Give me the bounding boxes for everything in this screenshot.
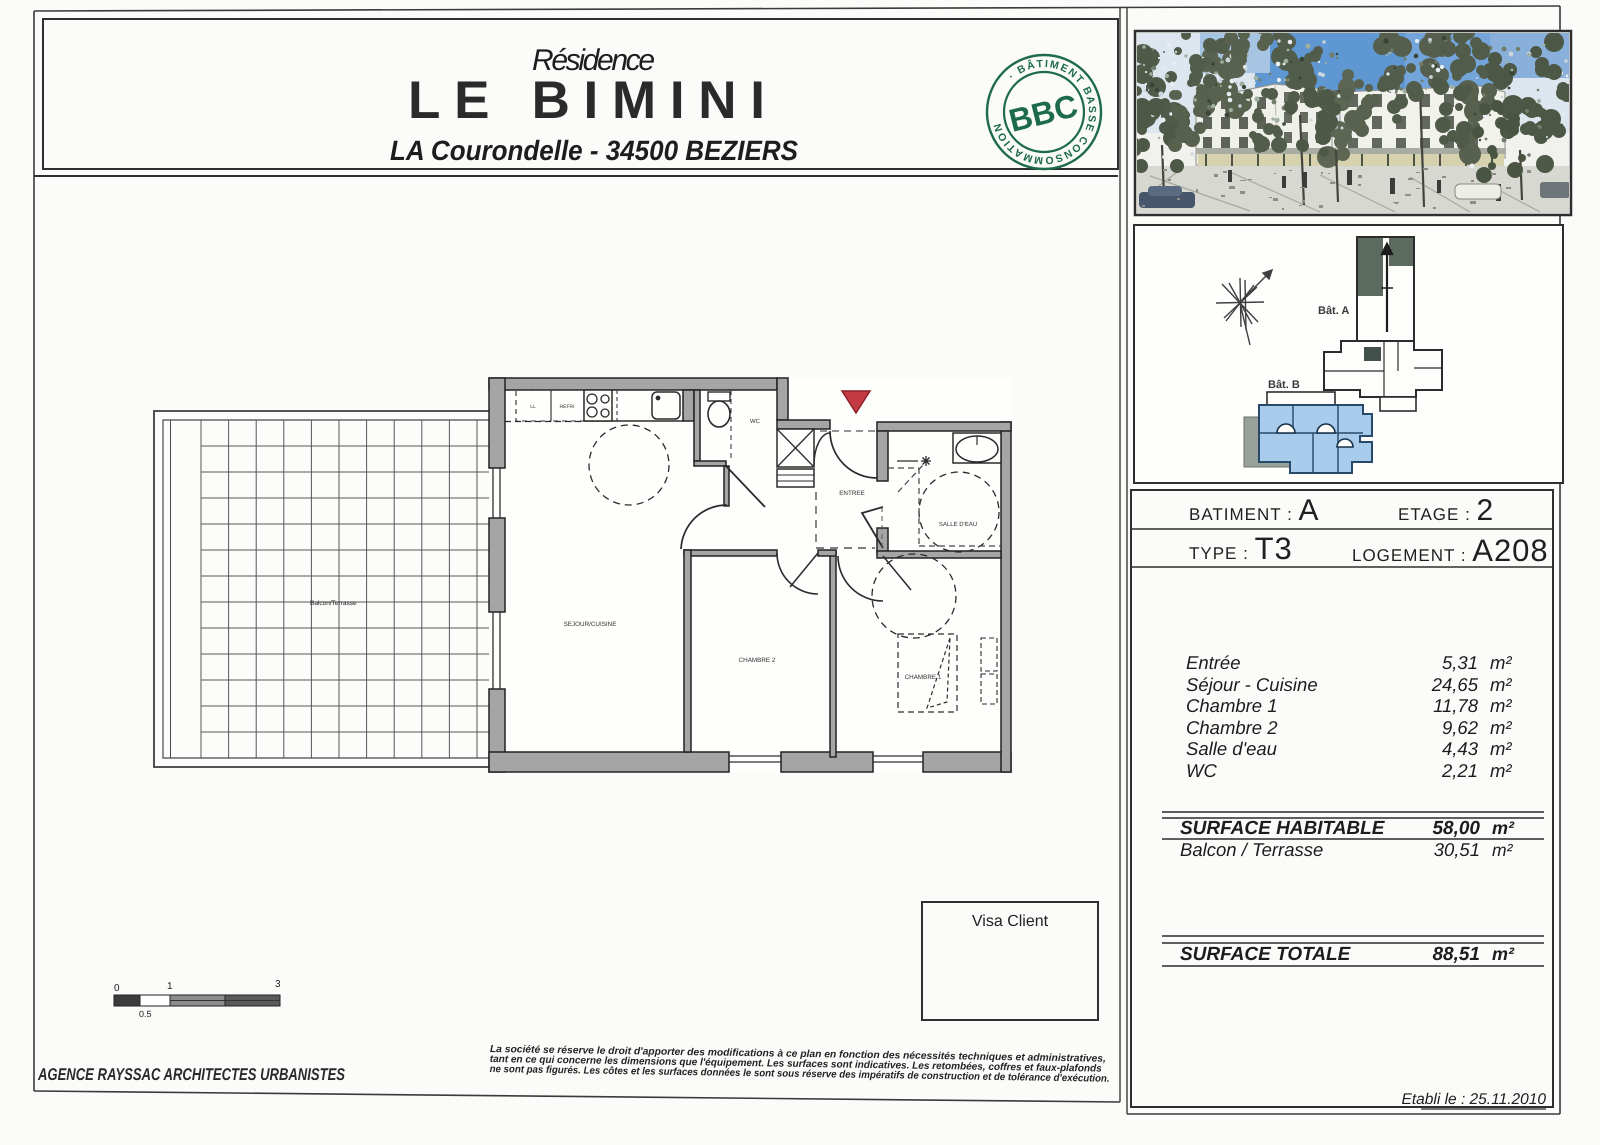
svg-text:4,43: 4,43 [1442, 738, 1479, 759]
svg-text:9,62: 9,62 [1442, 717, 1479, 738]
svg-text:CHAMBRE 2: CHAMBRE 2 [739, 657, 776, 664]
svg-text:m²: m² [1490, 652, 1512, 673]
svg-text:24,65: 24,65 [1431, 674, 1479, 695]
svg-text:3: 3 [275, 979, 281, 990]
svg-text:11,78: 11,78 [1433, 695, 1479, 716]
svg-text:m²: m² [1490, 717, 1512, 738]
svg-text:WC: WC [750, 418, 761, 425]
svg-text:58,00: 58,00 [1432, 818, 1480, 839]
svg-text:Visa Client: Visa Client [972, 913, 1049, 930]
svg-text:88,51: 88,51 [1432, 944, 1480, 965]
svg-text:REFRI: REFRI [560, 404, 575, 410]
svg-text:Etabli le : 25.11.2010: Etabli le : 25.11.2010 [1402, 1091, 1547, 1108]
svg-text:ENTREE: ENTREE [839, 490, 865, 497]
svg-text:0.5: 0.5 [139, 1009, 152, 1019]
svg-text:SEJOUR/CUISINE: SEJOUR/CUISINE [564, 621, 617, 628]
svg-text:m²: m² [1492, 818, 1515, 838]
svg-text:m²: m² [1490, 738, 1512, 759]
svg-text:m²: m² [1490, 674, 1512, 695]
svg-text:m²: m² [1490, 760, 1512, 781]
svg-text:Balcon / Terrasse: Balcon / Terrasse [1180, 839, 1323, 860]
svg-text:Chambre 2: Chambre 2 [1186, 717, 1278, 738]
svg-text:Bât. B: Bât. B [1268, 379, 1300, 391]
svg-text:Séjour - Cuisine: Séjour - Cuisine [1186, 674, 1318, 695]
svg-text:SURFACE TOTALE: SURFACE TOTALE [1180, 944, 1352, 965]
svg-text:SURFACE HABITABLE: SURFACE HABITABLE [1180, 818, 1386, 839]
svg-text:SALLE D'EAU: SALLE D'EAU [939, 521, 977, 528]
svg-text:Chambre 1: Chambre 1 [1186, 695, 1278, 716]
svg-text:LE BIMINI: LE BIMINI [408, 71, 765, 130]
svg-text:WC: WC [1186, 760, 1217, 781]
svg-text:Entrée: Entrée [1186, 652, 1241, 673]
svg-text:LL: LL [530, 404, 536, 410]
svg-text:30,51: 30,51 [1434, 839, 1480, 860]
svg-text:m²: m² [1492, 944, 1515, 964]
svg-text:0: 0 [114, 983, 120, 994]
svg-text:AGENCE RAYSSAC ARCHITECTES URB: AGENCE RAYSSAC ARCHITECTES URBANISTES [37, 1065, 345, 1084]
svg-text:2,21: 2,21 [1441, 760, 1478, 781]
svg-text:5,31: 5,31 [1442, 652, 1478, 673]
svg-text:m²: m² [1490, 695, 1512, 716]
svg-text:LA Courondelle - 34500 BEZIERS: LA Courondelle - 34500 BEZIERS [390, 135, 798, 166]
svg-text:Balcon/Terrasse: Balcon/Terrasse [310, 600, 357, 607]
svg-text:Salle d'eau: Salle d'eau [1186, 738, 1277, 759]
svg-text:m²: m² [1492, 840, 1514, 860]
svg-text:Bât. A: Bât. A [1318, 305, 1349, 317]
svg-text:1: 1 [167, 981, 173, 992]
svg-text:CHAMBRE 1: CHAMBRE 1 [905, 674, 942, 681]
